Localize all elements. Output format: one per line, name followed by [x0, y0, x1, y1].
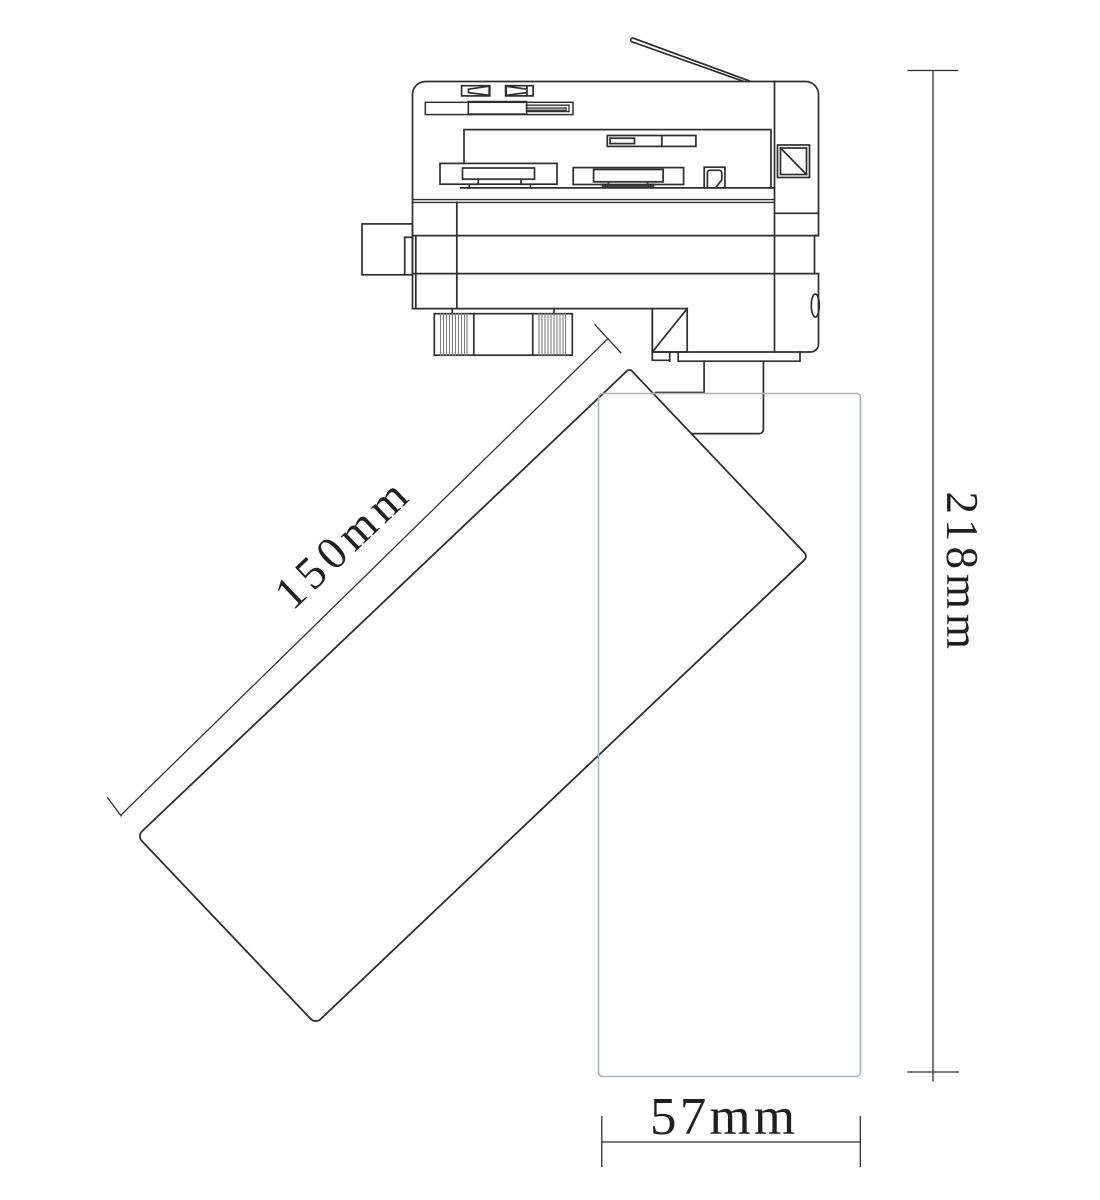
- svg-text:218mm: 218mm: [937, 492, 987, 655]
- svg-text:57mm: 57mm: [650, 1088, 798, 1146]
